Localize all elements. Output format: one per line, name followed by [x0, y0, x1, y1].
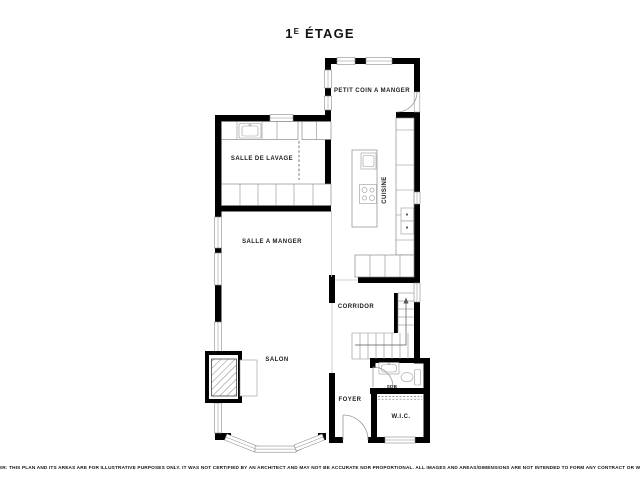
- toilet-icon: [401, 370, 421, 386]
- room-label-salle-a-manger: SALLE A MANGER: [242, 239, 302, 245]
- floor-plan-page: 1E ÉTAGE: [0, 0, 640, 480]
- room-label-salle-de-lavage: SALLE DE LAVAGE: [231, 156, 293, 162]
- cooktop-icon: [360, 185, 377, 204]
- room-label-corridor: CORRIDOR: [338, 304, 374, 310]
- floor-plan: 1E ÉTAGE: [0, 0, 640, 480]
- page-title: 1E ÉTAGE: [285, 26, 355, 41]
- disclaimer: DISCLAIMER: THIS PLAN AND ITS AREAS ARE …: [0, 465, 640, 470]
- island-sink-icon: [361, 153, 376, 169]
- laundry-sink-icon: [239, 124, 261, 139]
- kitchen-island: [352, 150, 377, 227]
- bathroom-sink-icon: [379, 363, 399, 375]
- room-label-petit-coin-a-manger: PETIT COIN A MANGER: [334, 88, 410, 94]
- room-label-foyer: FOYER: [339, 397, 362, 403]
- room-label-cuisine: CUISINE: [382, 176, 388, 204]
- wall-oven-icon: [401, 208, 414, 234]
- open-boundaries: [332, 211, 359, 373]
- entry-door: [343, 415, 368, 440]
- fireplace: [207, 353, 257, 401]
- room-label-salon: SALON: [265, 357, 288, 363]
- room-label-sdb: SDB: [387, 384, 398, 389]
- bay-window: [225, 434, 325, 452]
- closet-rod: [378, 397, 422, 400]
- staircase: [352, 293, 414, 359]
- laundry-counters: [222, 122, 332, 206]
- room-label-wic: W.I.C.: [391, 414, 410, 420]
- patio-door: [397, 92, 420, 112]
- stair-up-arrow: [404, 298, 409, 304]
